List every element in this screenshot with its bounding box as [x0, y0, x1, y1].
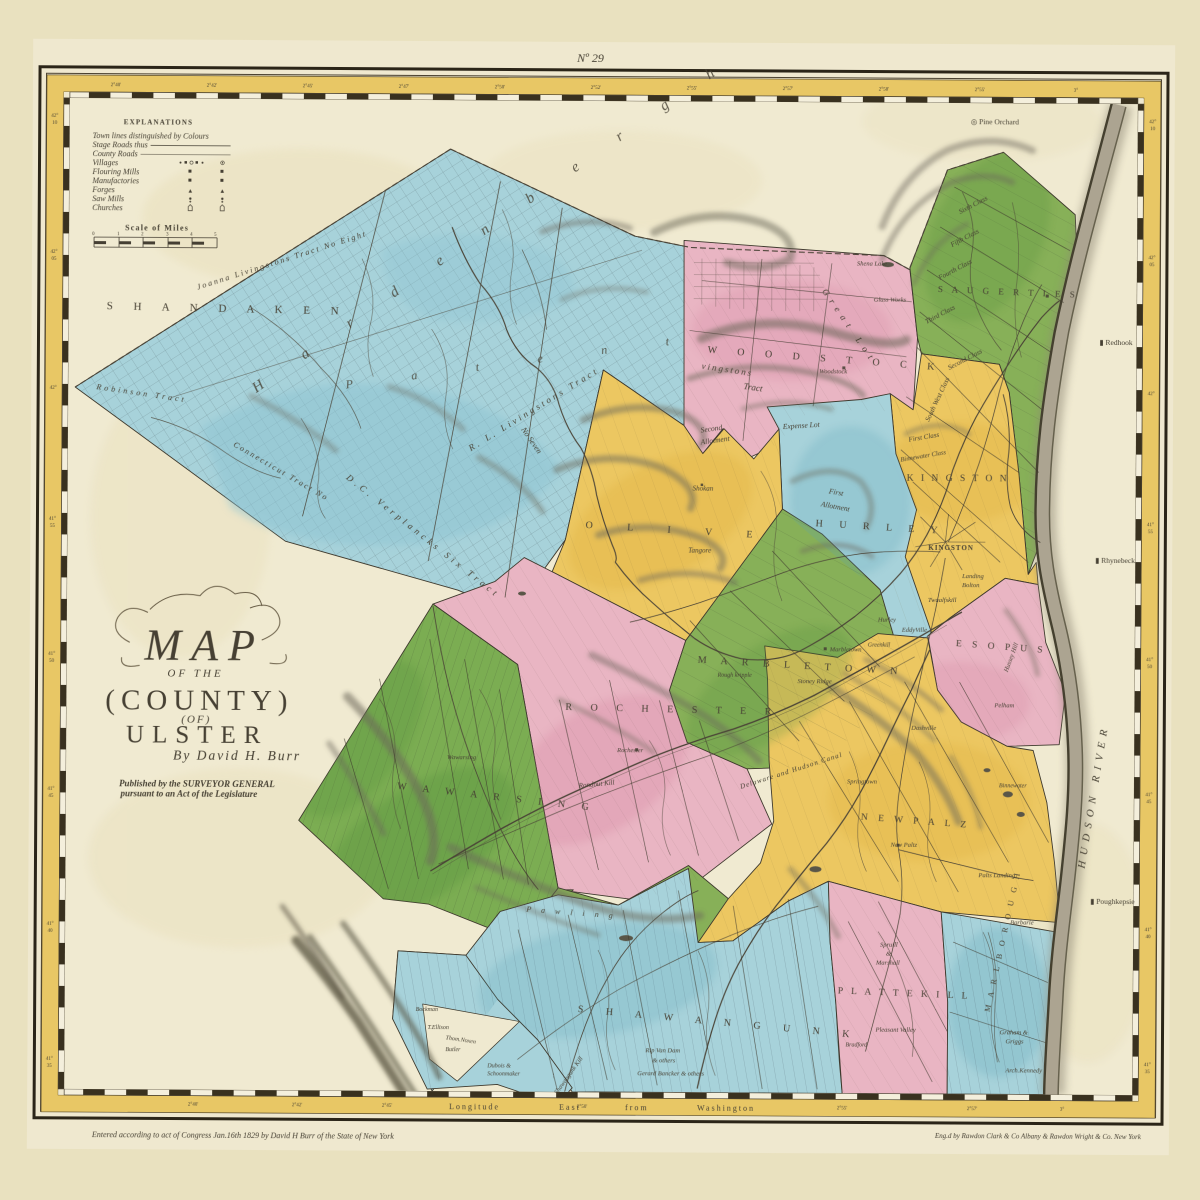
svg-text:2°52': 2°52'	[591, 86, 602, 91]
svg-text:41°: 41°	[47, 787, 54, 792]
svg-text:2°55': 2°55'	[687, 86, 698, 91]
svg-text:County Roads: County Roads	[93, 149, 138, 158]
svg-text:2°45': 2°45'	[382, 1104, 393, 1109]
svg-text:41°: 41°	[1144, 1063, 1151, 1068]
svg-text:EXPLANATIONS: EXPLANATIONS	[124, 118, 194, 126]
svg-text:Glass Works: Glass Works	[874, 297, 907, 304]
svg-text:Woodstock: Woodstock	[819, 368, 847, 375]
svg-text:Saw Mills: Saw Mills	[92, 194, 124, 203]
svg-text:Villages: Villages	[92, 158, 118, 167]
svg-text:Washington: Washington	[697, 1104, 755, 1113]
svg-text:42°: 42°	[1149, 120, 1156, 125]
svg-text:Stoney Ridge: Stoney Ridge	[798, 678, 832, 685]
svg-text:Forges: Forges	[91, 185, 114, 194]
svg-text:2°42': 2°42'	[292, 1103, 303, 1108]
svg-text:Pelham: Pelham	[993, 702, 1014, 709]
svg-text:2°57': 2°57'	[967, 1107, 978, 1112]
svg-text:▮ Poughkepsie: ▮ Poughkepsie	[1090, 897, 1135, 906]
svg-text:Nº 29: Nº 29	[576, 51, 604, 65]
svg-text:2°45': 2°45'	[303, 84, 314, 89]
svg-text:10: 10	[52, 121, 58, 126]
svg-text:45: 45	[48, 794, 54, 799]
svg-text:41°: 41°	[1146, 658, 1153, 663]
svg-text:42°: 42°	[51, 114, 58, 119]
svg-text:from: from	[625, 1103, 649, 1112]
svg-text:Manufactories: Manufactories	[91, 176, 139, 185]
svg-text:2°55': 2°55'	[837, 1106, 848, 1111]
svg-text:Dashville: Dashville	[910, 725, 936, 732]
svg-text:Bockman: Bockman	[416, 1007, 438, 1013]
svg-text:Entered according to act of Co: Entered according to act of Congress Jan…	[91, 1130, 394, 1141]
svg-text:42°: 42°	[50, 386, 57, 391]
svg-text:Marshall: Marshall	[875, 960, 900, 967]
svg-text:Shena Lake: Shena Lake	[857, 260, 887, 267]
svg-text:By David H. Burr: By David H. Burr	[173, 748, 301, 764]
svg-text:55: 55	[1148, 530, 1154, 535]
svg-text:Marbletown: Marbletown	[829, 646, 862, 653]
svg-text:ULSTER: ULSTER	[126, 721, 269, 749]
svg-text:40: 40	[1146, 935, 1152, 940]
svg-text:Gerard Bancker & others: Gerard Bancker & others	[637, 1070, 704, 1077]
svg-text:Barbarie: Barbarie	[1010, 919, 1034, 926]
svg-text:Bradford: Bradford	[845, 1041, 868, 1048]
svg-text:(COUNTY): (COUNTY)	[105, 684, 293, 717]
svg-text:Bolton: Bolton	[962, 582, 979, 589]
svg-text:2°40': 2°40'	[188, 1103, 199, 1108]
svg-text:05: 05	[51, 257, 57, 262]
svg-text:2°40': 2°40'	[111, 83, 122, 88]
svg-text:Pleasant Valley: Pleasant Valley	[875, 1027, 916, 1034]
svg-text:41°: 41°	[1147, 523, 1154, 528]
svg-text:▲: ▲	[187, 189, 193, 195]
svg-text:Graham &: Graham &	[999, 1029, 1028, 1036]
svg-text:2°47': 2°47'	[399, 85, 410, 90]
svg-text:35: 35	[47, 1064, 53, 1069]
svg-text:New Paltz: New Paltz	[890, 842, 918, 849]
svg-text:2°58': 2°58'	[879, 88, 890, 93]
svg-text:42°: 42°	[50, 250, 57, 255]
svg-text:▮ Rhynebeck: ▮ Rhynebeck	[1095, 556, 1135, 565]
svg-text:50: 50	[1147, 665, 1153, 670]
svg-text:Longitude: Longitude	[449, 1102, 500, 1111]
svg-text:Flouring Mills: Flouring Mills	[91, 167, 139, 176]
svg-text:◎ Pine Orchard: ◎ Pine Orchard	[971, 117, 1019, 126]
svg-text:Springtown: Springtown	[847, 778, 877, 785]
svg-text:Schoonmaker: Schoonmaker	[487, 1071, 520, 1077]
svg-text:Palts Landing: Palts Landing	[977, 872, 1015, 879]
svg-text:42°: 42°	[1148, 256, 1155, 261]
svg-text:Rip Van Dam: Rip Van Dam	[644, 1047, 680, 1054]
svg-text:T.Ellison: T.Ellison	[428, 1025, 449, 1031]
svg-text:Tangore: Tangore	[688, 547, 711, 555]
svg-text:Eng.d by Rawdon Clark & Co Alb: Eng.d by Rawdon Clark & Co Albany & Rawd…	[934, 1132, 1142, 1141]
svg-text:05: 05	[1149, 263, 1155, 268]
svg-text:KINGSTON: KINGSTON	[928, 544, 974, 552]
svg-text:Binnewater: Binnewater	[999, 783, 1027, 789]
svg-text:10: 10	[1150, 127, 1156, 132]
svg-text:41°: 41°	[1145, 928, 1152, 933]
svg-text:Wawarsing: Wawarsing	[447, 754, 477, 761]
svg-text:Greenkill: Greenkill	[868, 643, 891, 649]
svg-text:▲: ▲	[219, 189, 225, 195]
svg-text:East: East	[559, 1103, 581, 1112]
svg-text:41°: 41°	[48, 652, 55, 657]
svg-text:pursuant to an Act of the Legi: pursuant to an Act of the Legislature	[120, 788, 258, 799]
svg-text:Spruill: Spruill	[880, 942, 898, 949]
svg-text:MAP: MAP	[143, 620, 265, 670]
svg-text:Hurley: Hurley	[877, 617, 896, 624]
svg-text:OF THE: OF THE	[167, 668, 223, 680]
svg-text:55: 55	[50, 524, 56, 529]
svg-text:& others: & others	[652, 1057, 675, 1064]
svg-text:41°: 41°	[1145, 793, 1152, 798]
svg-text:Landing: Landing	[961, 573, 984, 580]
svg-text:2°42': 2°42'	[207, 84, 218, 89]
svg-text:2°55': 2°55'	[975, 88, 986, 93]
svg-text:3°: 3°	[1060, 1108, 1065, 1113]
svg-text:Shokan: Shokan	[693, 485, 714, 493]
svg-text:41°: 41°	[46, 1057, 53, 1062]
svg-text:EddyVille: EddyVille	[901, 627, 927, 634]
svg-text:Twaalfskill: Twaalfskill	[928, 597, 957, 604]
svg-text:41°: 41°	[49, 517, 56, 522]
svg-text:45: 45	[1146, 800, 1152, 805]
svg-text:Churches: Churches	[92, 203, 122, 212]
svg-text:2°50': 2°50'	[495, 85, 506, 90]
svg-text:Butler: Butler	[445, 1047, 461, 1053]
svg-text:Arch.Kennedy: Arch.Kennedy	[1004, 1067, 1042, 1074]
svg-text:K I N G S T O N: K I N G S T O N	[907, 474, 1009, 485]
svg-text:2°57': 2°57'	[783, 87, 794, 92]
svg-text:Rough kripple: Rough kripple	[717, 673, 753, 679]
svg-text:3°: 3°	[1074, 89, 1079, 94]
svg-text:Dubois &: Dubois &	[486, 1063, 511, 1069]
svg-text:42°: 42°	[1148, 392, 1155, 397]
svg-text:Rochester: Rochester	[616, 747, 644, 754]
svg-text:▮ Redhook: ▮ Redhook	[1099, 338, 1132, 347]
svg-text:41°: 41°	[47, 922, 54, 927]
svg-text:Stage Roads thus: Stage Roads thus	[93, 140, 148, 149]
svg-text:Scale of Miles: Scale of Miles	[125, 223, 189, 232]
svg-text:Griggs: Griggs	[1005, 1038, 1024, 1045]
svg-text:35: 35	[1145, 1070, 1151, 1075]
svg-text:50: 50	[49, 659, 55, 664]
svg-text:40: 40	[48, 929, 54, 934]
